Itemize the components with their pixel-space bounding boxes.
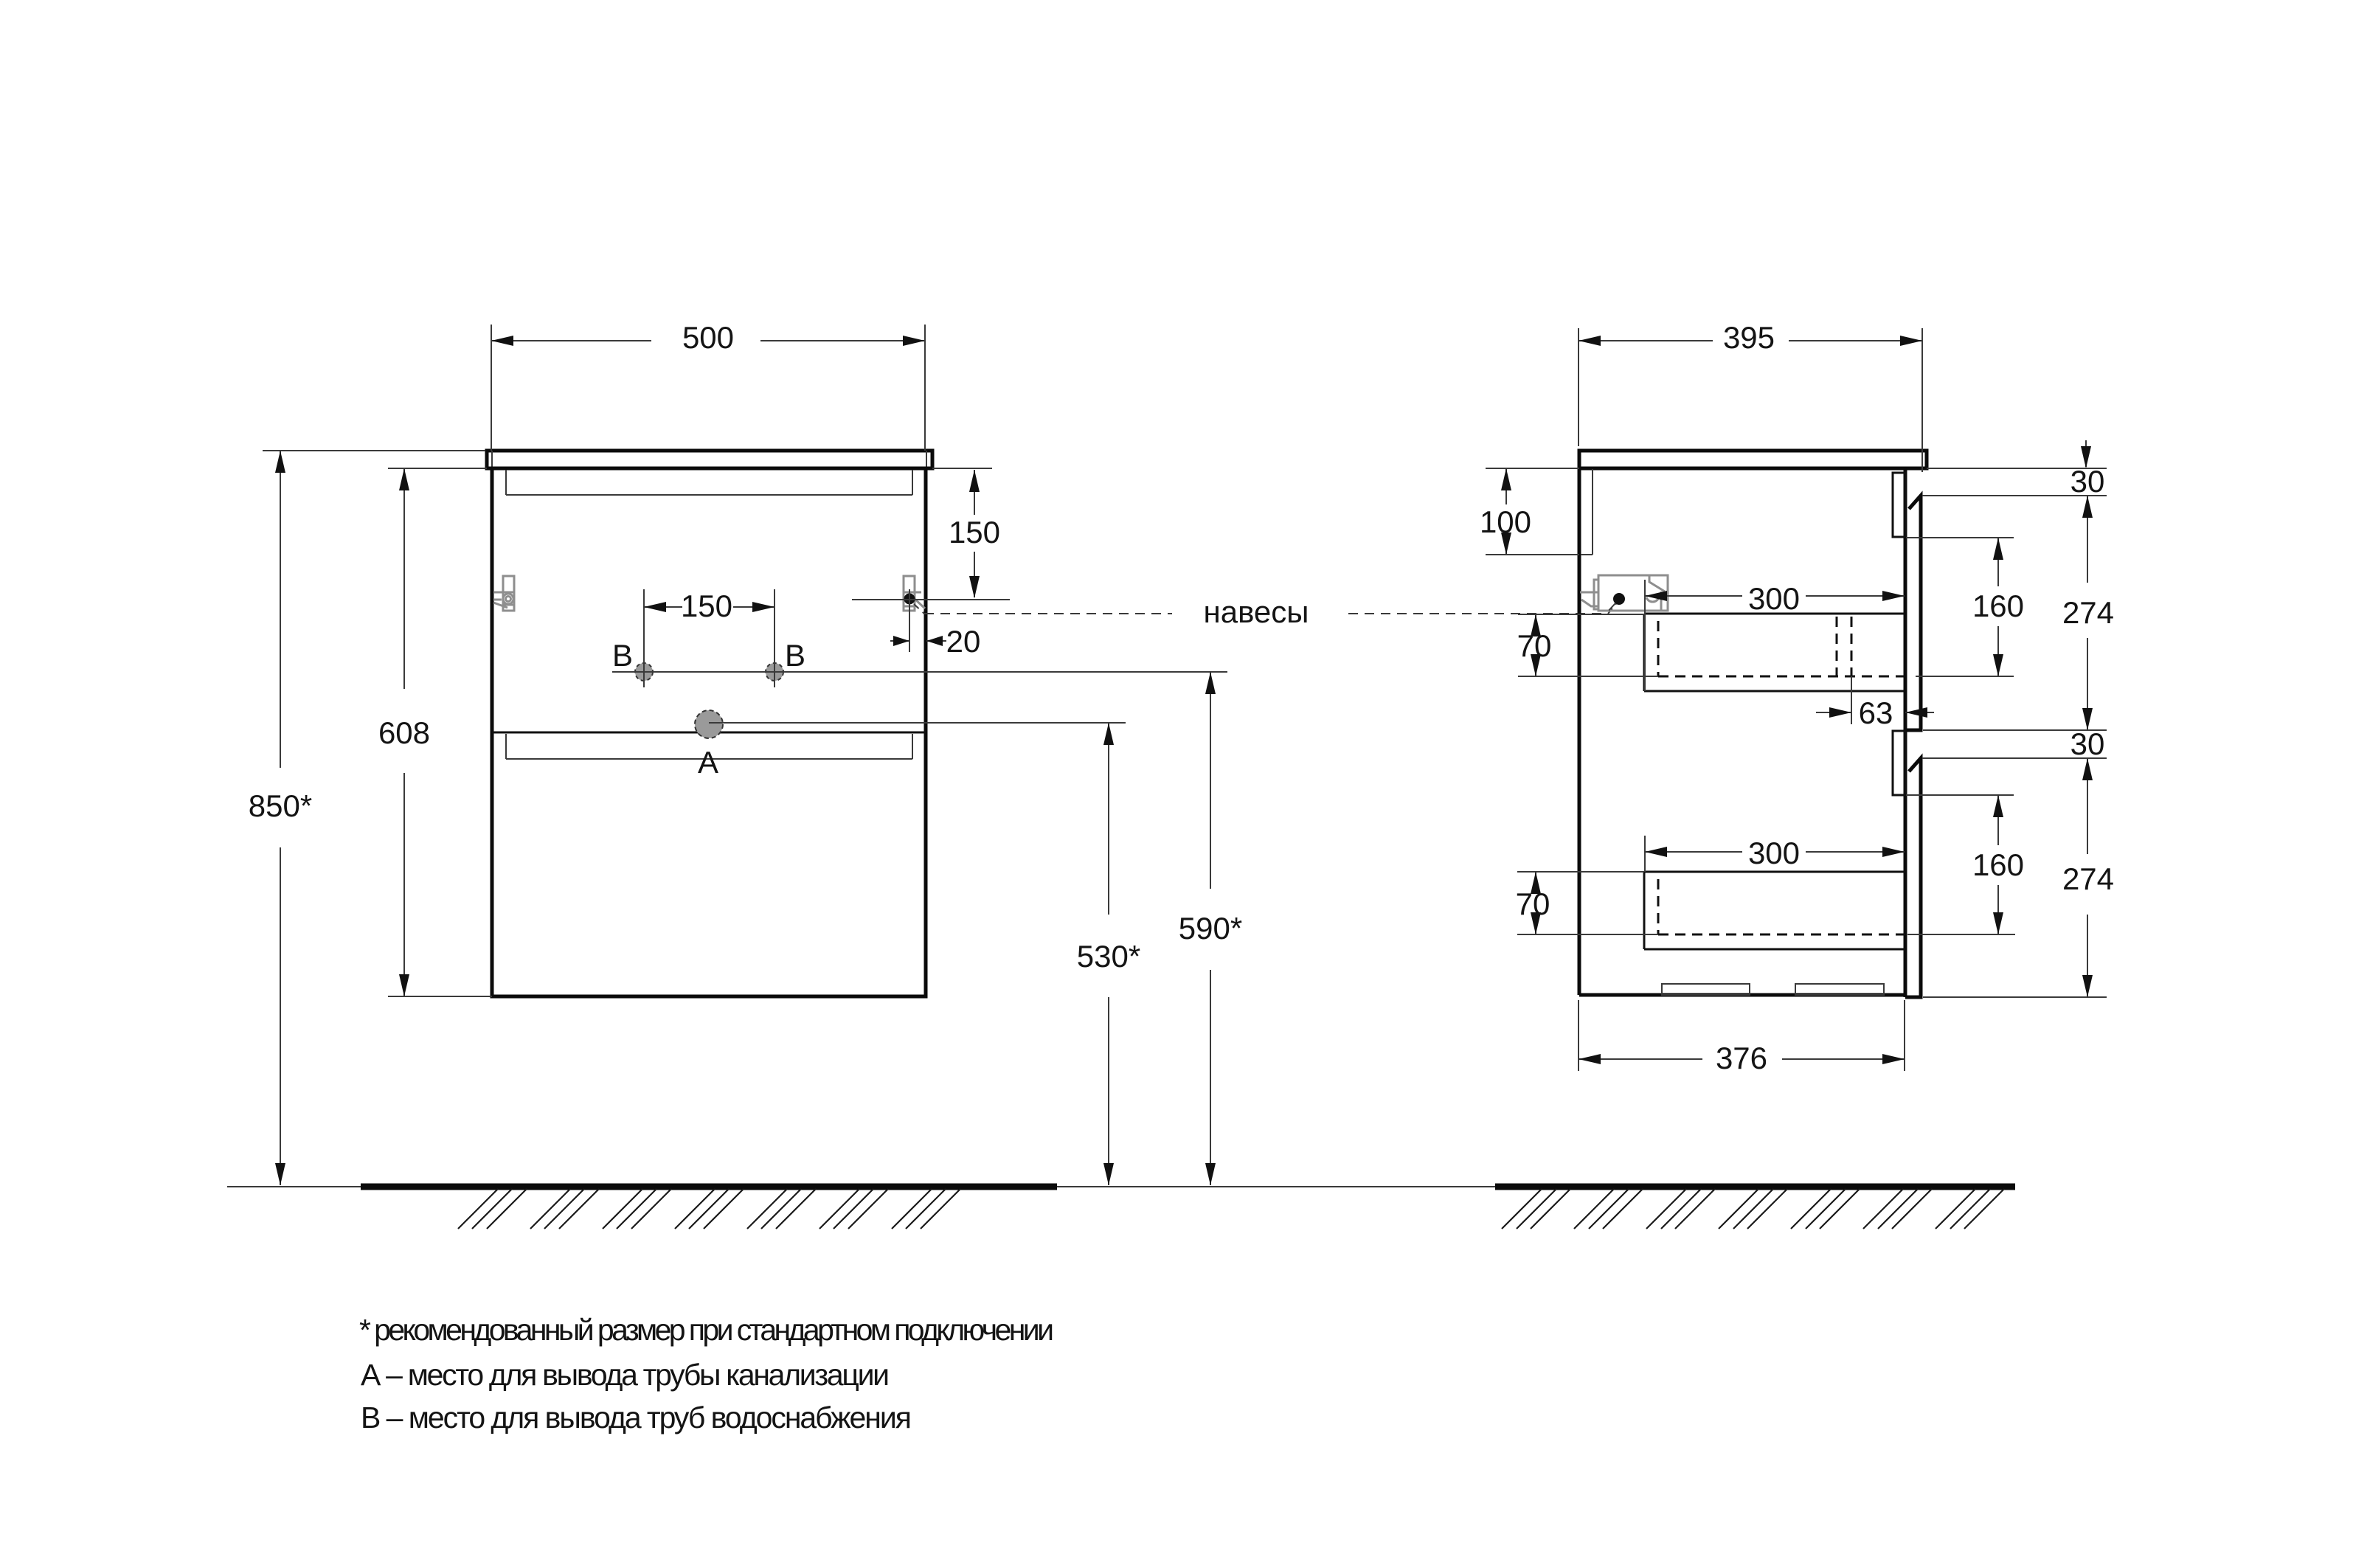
- svg-text:20: 20: [946, 624, 981, 659]
- svg-text:А: А: [698, 745, 718, 780]
- svg-text:100: 100: [1480, 504, 1531, 539]
- svg-text:70: 70: [1517, 628, 1552, 663]
- svg-text:* рекомендованный размер при с: * рекомендованный размер при стандартном…: [359, 1313, 1053, 1347]
- svg-text:300: 300: [1748, 836, 1800, 870]
- svg-text:850*: 850*: [249, 788, 312, 823]
- svg-text:395: 395: [1723, 320, 1775, 355]
- svg-text:530*: 530*: [1077, 939, 1140, 974]
- svg-text:274: 274: [2062, 861, 2114, 896]
- svg-text:навесы: навесы: [1204, 594, 1309, 629]
- svg-text:В: В: [785, 638, 805, 673]
- svg-text:300: 300: [1748, 581, 1800, 616]
- svg-text:500: 500: [682, 320, 734, 355]
- svg-text:В: В: [612, 638, 633, 673]
- svg-text:30: 30: [2070, 464, 2105, 499]
- svg-text:160: 160: [1972, 847, 2024, 882]
- svg-text:63: 63: [1859, 695, 1893, 730]
- svg-text:А – место для вывода трубы кан: А – место для вывода трубы канализации: [361, 1358, 888, 1392]
- svg-text:70: 70: [1516, 887, 1550, 921]
- svg-text:590*: 590*: [1179, 911, 1242, 946]
- svg-text:274: 274: [2062, 595, 2114, 630]
- svg-text:150: 150: [949, 515, 1000, 549]
- svg-text:150: 150: [681, 589, 732, 623]
- svg-text:376: 376: [1716, 1041, 1767, 1075]
- svg-text:608: 608: [378, 715, 430, 750]
- svg-text:30: 30: [2070, 726, 2105, 761]
- svg-text:160: 160: [1972, 589, 2024, 623]
- svg-text:В – место для вывода труб водо: В – место для вывода труб водоснабжения: [361, 1401, 910, 1435]
